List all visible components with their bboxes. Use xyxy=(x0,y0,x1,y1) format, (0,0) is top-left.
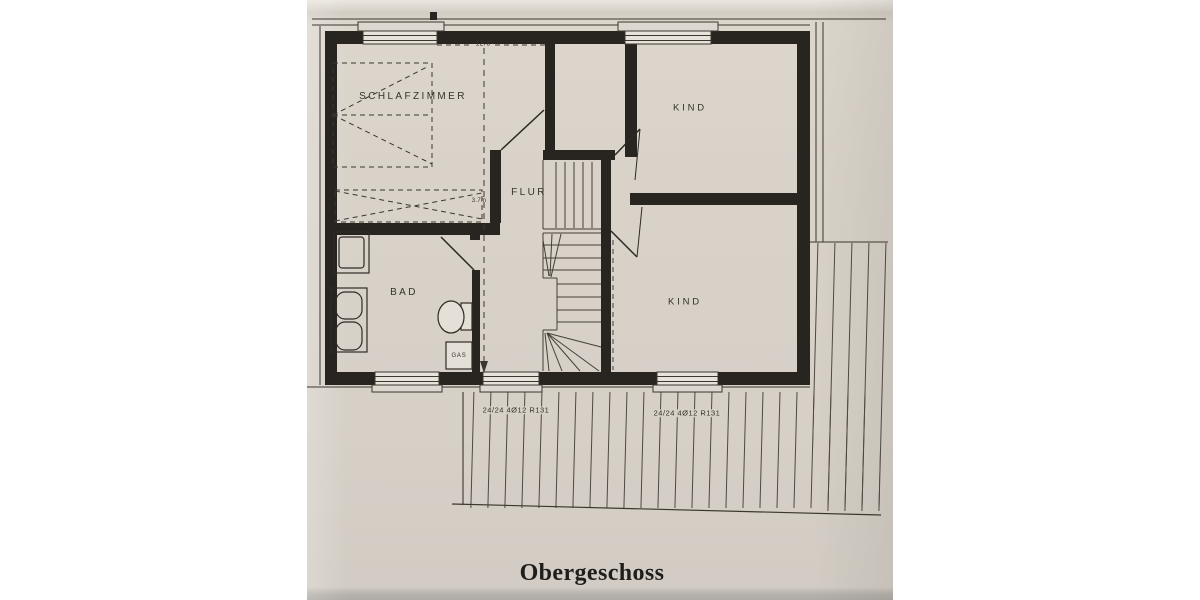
plan-caption: Obergeschoss xyxy=(520,561,665,585)
lintel-label-right: 24/24 4Ø12 R131 xyxy=(652,409,723,417)
beam-dimension-label: 12/8 xyxy=(475,41,490,48)
room-label-kind-bottom: KIND xyxy=(668,297,702,307)
windows xyxy=(358,22,722,392)
room-label-bad: BAD xyxy=(390,288,418,298)
room-label-schlafzimmer: SCHLAFZIMMER xyxy=(359,92,467,102)
floorplan-drawing xyxy=(0,0,1200,600)
gas-label: GAS xyxy=(451,353,466,359)
depth-dimension-label: 3.7m xyxy=(472,198,487,204)
screenshot-canvas: SCHLAFZIMMER KIND FLUR BAD KIND GAS 12/8… xyxy=(0,0,1200,600)
bathroom-fixtures xyxy=(331,232,472,369)
room-label-kind-top: KIND xyxy=(673,103,707,113)
lintel-label-left: 24/24 4Ø12 R131 xyxy=(481,406,552,414)
walls xyxy=(325,31,810,385)
room-label-flur: FLUR xyxy=(511,188,547,198)
